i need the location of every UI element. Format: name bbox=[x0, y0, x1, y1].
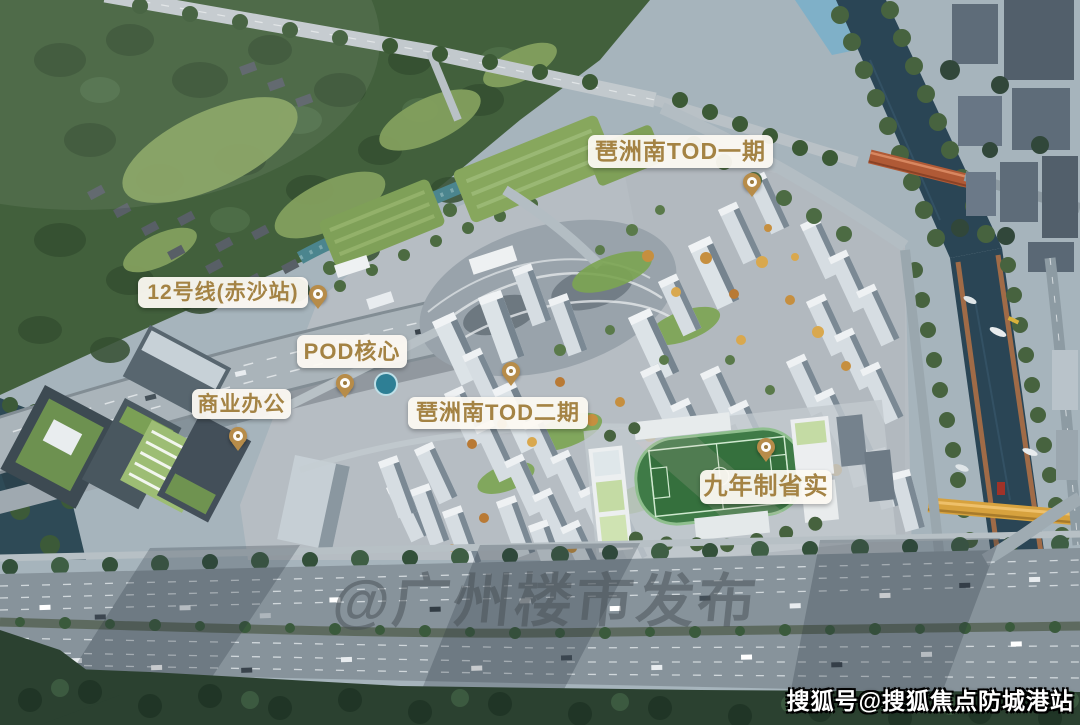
pin-tail bbox=[232, 443, 244, 451]
pin-tail bbox=[312, 301, 324, 309]
label-nine-year-school-text: 九年制省实 bbox=[704, 475, 829, 499]
pin-tail bbox=[505, 378, 517, 386]
label-tod-phase1: 琶洲南TOD一期 bbox=[588, 135, 773, 168]
label-line12-text: 12号线(赤沙站) bbox=[147, 282, 298, 303]
pin-tail bbox=[746, 189, 758, 197]
map-pin-icon-tod-phase1 bbox=[743, 173, 761, 191]
label-nine-year-school: 九年制省实 bbox=[700, 470, 832, 504]
aerial-masterplan-image: 琶洲南TOD一期 12号线(赤沙站) POD核心 商业办公 琶洲南TOD二期 九… bbox=[0, 0, 1080, 725]
label-pod-core: POD核心 bbox=[297, 335, 407, 368]
pin-tail bbox=[339, 390, 351, 398]
label-tod-phase2-text: 琶洲南TOD二期 bbox=[416, 402, 580, 424]
map-pin-icon-pod-core bbox=[336, 374, 354, 392]
map-pin-icon-line12 bbox=[309, 285, 327, 303]
label-tod-phase2: 琶洲南TOD二期 bbox=[408, 397, 588, 429]
label-line12-chisha-station: 12号线(赤沙站) bbox=[138, 277, 308, 308]
label-tod-phase1-text: 琶洲南TOD一期 bbox=[595, 140, 766, 163]
label-pod-core-text: POD核心 bbox=[304, 341, 401, 363]
watermark-text: @广州楼市发布 bbox=[330, 573, 762, 631]
label-commercial-office-text: 商业办公 bbox=[198, 394, 286, 415]
map-pin-icon-commercial-office bbox=[229, 427, 247, 445]
map-pin-icon-school bbox=[757, 438, 775, 456]
label-commercial-office: 商业办公 bbox=[192, 389, 291, 419]
attribution-text: 搜狐号@搜狐焦点防城港站 bbox=[787, 690, 1074, 713]
pin-tail bbox=[760, 454, 772, 462]
map-pin-icon-tod-phase2 bbox=[502, 362, 520, 380]
